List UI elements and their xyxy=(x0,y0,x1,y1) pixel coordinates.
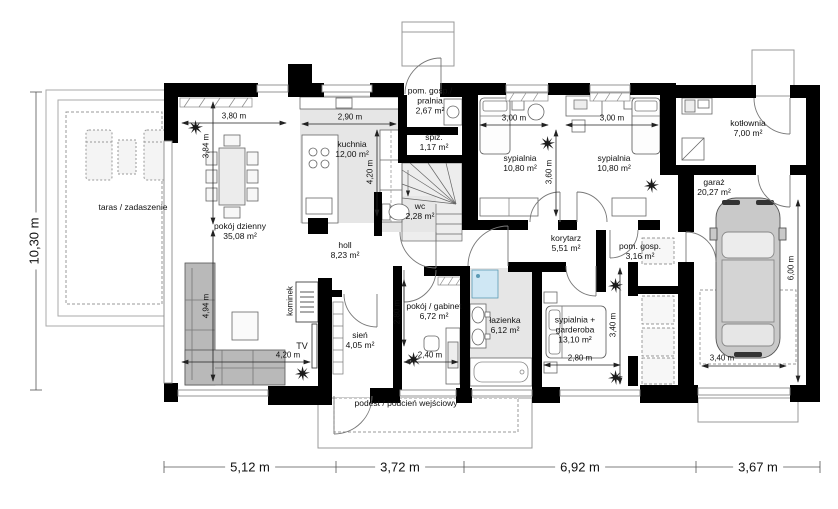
dim-bottom-2: 3,72 m xyxy=(375,460,425,475)
light-point-icon xyxy=(644,178,659,193)
car xyxy=(700,198,796,364)
dim-living-height1: 3,84 m xyxy=(202,134,211,158)
bedroom3-door xyxy=(566,266,596,296)
light-point-icon xyxy=(540,136,555,151)
shower xyxy=(472,270,498,298)
hall-closet xyxy=(333,302,343,374)
room-label-sypialnia-garderoba: sypialnia + garderoba 13,10 m² xyxy=(538,315,612,344)
room-label-garaz: garaż 20,27 m² xyxy=(697,178,731,198)
floor-plan: taras / zadaszenie pokój dzienny 35,08 m… xyxy=(0,0,838,509)
fireplace xyxy=(296,282,318,322)
dim-bedroom2-width: 3,00 m xyxy=(600,114,624,123)
room-label-podest: podest / podcień wejściowy xyxy=(346,399,466,409)
dim-office-width: 2,40 m xyxy=(418,351,442,360)
room-label-sypialnia-1: sypialnia 10,80 m² xyxy=(503,154,537,174)
room-label-wc: wc 2,28 m² xyxy=(406,202,435,222)
tv-label: TV xyxy=(296,341,308,351)
dining-set xyxy=(206,135,258,218)
room-label-holl: holl 8,23 m² xyxy=(331,241,360,261)
dim-bedroom3-width: 2,80 m xyxy=(568,354,592,363)
dim-bedrooms-height: 3,60 m xyxy=(545,160,554,184)
hall-door xyxy=(344,294,377,327)
room-label-pralnia: pom. gosp./ pralnia 2,67 m² xyxy=(402,86,458,115)
room-label-sypialnia-2: sypialnia 10,80 m² xyxy=(597,154,631,174)
light-point-icon xyxy=(188,120,203,135)
coffee-table xyxy=(232,312,258,340)
bathroom-door xyxy=(468,226,508,266)
lounge-set xyxy=(86,130,170,180)
bedroom2-door xyxy=(577,192,607,222)
dim-bottom-3: 6,92 m xyxy=(555,460,605,475)
dim-garage-height: 6,00 m xyxy=(787,256,796,280)
dim-garage-width: 3,40 m xyxy=(710,354,734,363)
dim-living-height2: 4,94 m xyxy=(202,294,211,318)
floorplan-drawing xyxy=(0,0,838,509)
room-label-pom-gosp: pom. gosp. 3,16 m² xyxy=(619,242,661,262)
light-point-icon xyxy=(608,370,623,385)
room-label-kotlownia: kotłownia 7,00 m² xyxy=(730,119,765,139)
room-label-pokoj-dzienny: pokój dzienny 35,08 m² xyxy=(214,222,266,242)
light-point-icon xyxy=(295,366,310,381)
room-label-lazienka: łazienka 6,12 m² xyxy=(489,316,520,336)
room-label-sien: sień 4,05 m² xyxy=(346,331,375,351)
dim-bottom-4: 3,67 m xyxy=(733,460,783,475)
dim-bedroom3-height: 3,40 m xyxy=(609,313,618,337)
room-label-korytarz: korytarz 5,51 m² xyxy=(551,234,581,254)
light-point-icon xyxy=(608,278,623,293)
room-label-kuchnia: kuchnia 12,00 m² xyxy=(335,140,369,160)
dim-bedroom1-width: 3,00 m xyxy=(502,114,526,123)
dim-total-height: 10,30 m xyxy=(27,213,42,270)
boiler-room-fixtures xyxy=(682,98,712,160)
tv-set xyxy=(312,324,317,368)
dim-office-height: 2,80 m xyxy=(393,300,402,324)
room-label-spiz: spiż. 1,17 m² xyxy=(420,133,449,153)
room-label-gabinet: pokój / gabinet 6,72 m² xyxy=(406,302,461,322)
dim-living-width: 3,80 m xyxy=(222,112,246,121)
dim-tv-wall: 4,20 m xyxy=(276,351,300,360)
dim-kitchen-width: 2,90 m xyxy=(338,113,362,122)
room-label-taras: taras / zadaszenie xyxy=(99,203,168,213)
fireplace-label: kominek xyxy=(286,286,295,316)
dim-bottom-1: 5,12 m xyxy=(225,460,275,475)
dim-kitchen-height: 4,20 m xyxy=(366,160,375,184)
